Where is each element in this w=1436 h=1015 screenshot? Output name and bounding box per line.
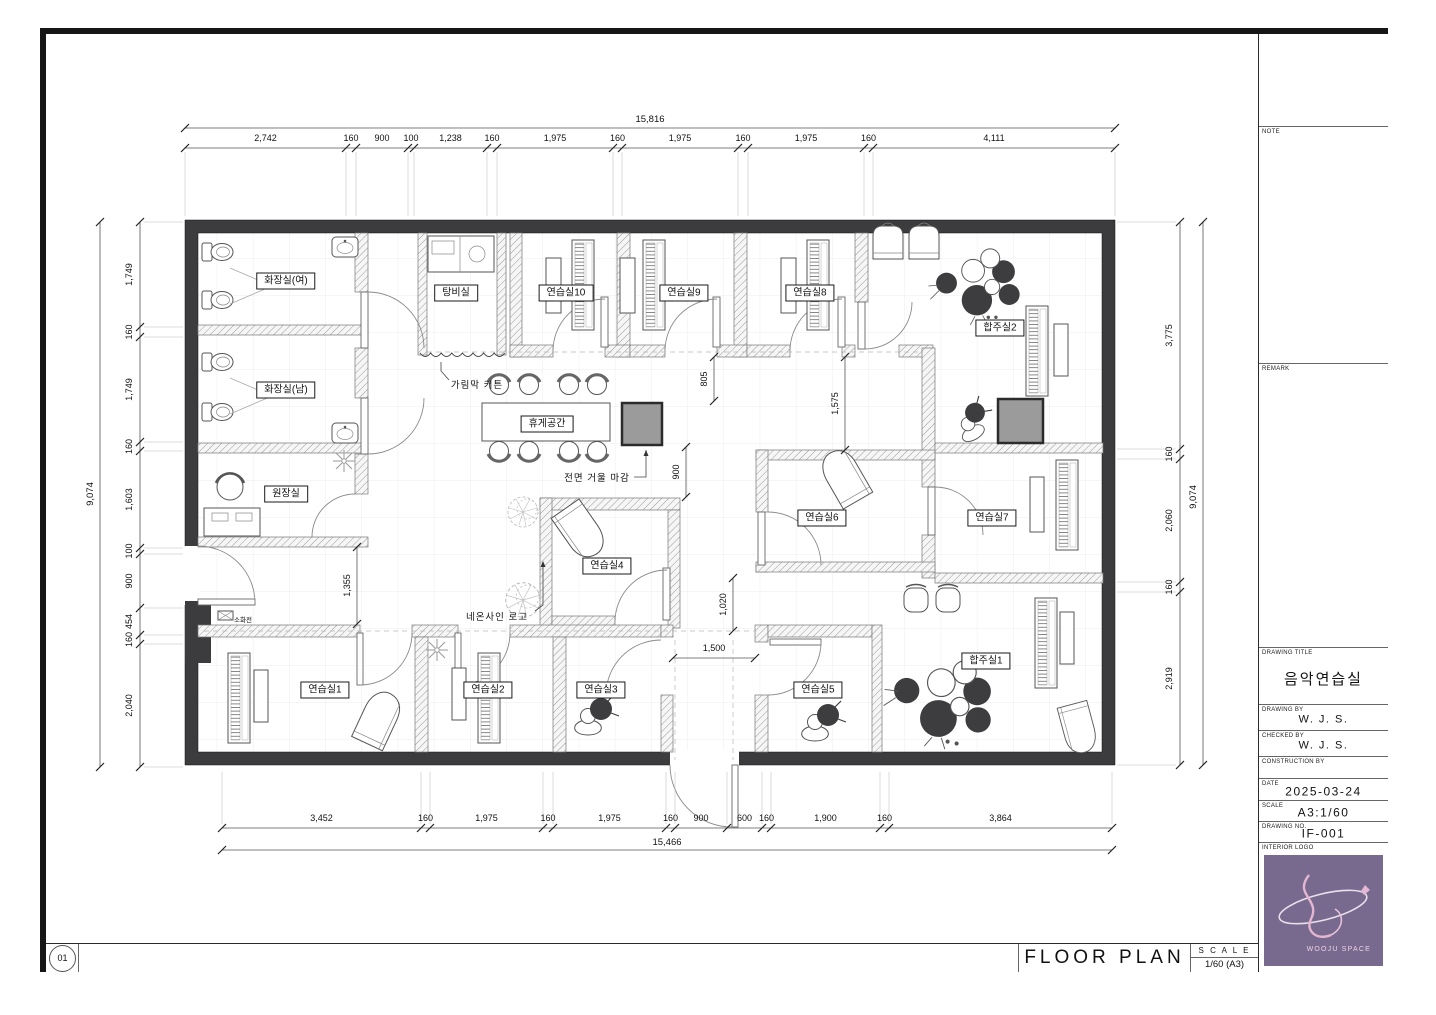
- drawing-title-footer: FLOOR PLAN: [1018, 944, 1190, 972]
- interior-logo-label: INTERIOR LOGO: [1262, 845, 1314, 851]
- checked-by-value: W. J. S.: [1259, 739, 1388, 751]
- dim-label: 1,975: [544, 133, 567, 143]
- dim-label: 900: [671, 464, 681, 479]
- room-label-practice-2: 연습실2: [463, 682, 512, 699]
- room-label-ensemble-1: 합주실1: [961, 653, 1010, 670]
- dim-label: 1,749: [124, 378, 134, 401]
- room-label-practice-10: 연습실10: [539, 285, 594, 302]
- room-label-practice-1: 연습실1: [300, 682, 349, 699]
- dim-label: 3,775: [1164, 324, 1174, 347]
- dim-label: 900: [374, 133, 389, 143]
- room-label-restroom-men: 화장실(남): [256, 382, 315, 399]
- dim-label: 1,238: [439, 133, 462, 143]
- room-label-lounge: 휴게공간: [521, 416, 574, 433]
- checked-by-section: CHECKED BY W. J. S.: [1259, 731, 1388, 757]
- room-label-practice-3: 연습실3: [576, 682, 625, 699]
- annotation-curtain: 가림막 커튼: [451, 377, 503, 391]
- annotation-hydrant: 소화전: [234, 614, 252, 624]
- date-section: DATE 2025-03-24: [1259, 779, 1388, 801]
- sheet-number-cell: 01: [46, 944, 79, 972]
- dim-label: 160: [735, 133, 750, 143]
- room-label-director-office: 원장실: [264, 486, 308, 503]
- construction-by-section: CONSTRUCTION BY: [1259, 757, 1388, 779]
- dim-label: 900: [124, 573, 134, 588]
- construction-by-label: CONSTRUCTION BY: [1262, 759, 1325, 765]
- dim-label: 1,500: [703, 643, 726, 653]
- dim-label: 160: [540, 813, 555, 823]
- dim-label: 2,919: [1164, 667, 1174, 690]
- dim-label: 2,060: [1164, 509, 1174, 532]
- drawing-no-value: IF-001: [1259, 827, 1388, 841]
- dim-label: 160: [124, 632, 134, 647]
- dim-label: 160: [124, 439, 134, 454]
- drawing-by-value: W. J. S.: [1259, 713, 1388, 725]
- dim-label: 100: [403, 133, 418, 143]
- dim-label: 160: [877, 813, 892, 823]
- dim-label: 2,742: [254, 133, 277, 143]
- dim-label: 1,975: [598, 813, 621, 823]
- dim-label: 1,975: [669, 133, 692, 143]
- dim-label: 1,020: [718, 593, 728, 616]
- scale-value: A3:1/60: [1259, 806, 1388, 820]
- dim-label: 805: [699, 371, 709, 386]
- scale-footer-value: 1/60 (A3): [1191, 958, 1258, 972]
- room-label-restroom-women: 화장실(여): [256, 273, 315, 290]
- dim-label: 160: [1164, 446, 1174, 461]
- dim-label: 3,452: [310, 813, 333, 823]
- room-label-practice-4: 연습실4: [582, 558, 631, 575]
- logo-text: WOOJU SPACE: [1307, 946, 1371, 953]
- annotation-mirror: 전면 거울 마감: [564, 470, 630, 484]
- drawing-by-section: DRAWING BY W. J. S.: [1259, 705, 1388, 731]
- dim-label: 4,111: [983, 133, 1004, 143]
- drawing-sheet: 2,7421609001001,2381601,9751601,9751601,…: [0, 0, 1436, 1015]
- sheet-number: 01: [49, 945, 76, 972]
- dim-label: 160: [610, 133, 625, 143]
- note-label: NOTE: [1262, 129, 1280, 135]
- dim-label: 15,816: [635, 114, 664, 125]
- dim-label: 160: [484, 133, 499, 143]
- drawing-title-section: DRAWING TITLE 음악연습실: [1259, 648, 1388, 705]
- dim-label: 1,749: [124, 263, 134, 286]
- annotation-neon: 네온사인 로고: [466, 609, 528, 623]
- drawing-no-section: DRAWING NO. IF-001: [1259, 822, 1388, 843]
- scale-heading: S C A L E: [1191, 944, 1258, 958]
- dim-label: 160: [861, 133, 876, 143]
- dim-label: 1,900: [814, 813, 837, 823]
- dim-label: 9,074: [1188, 485, 1199, 509]
- dim-label: 1,975: [795, 133, 818, 143]
- floor-plan-svg: 2,7421609001001,2381601,9751601,9751601,…: [0, 0, 1436, 1015]
- dim-label: 160: [418, 813, 433, 823]
- drawing-title-value: 음악연습실: [1259, 668, 1388, 689]
- title-block-blank: [1259, 34, 1388, 127]
- dim-label: 100: [124, 543, 134, 558]
- dim-label: 3,864: [989, 813, 1012, 823]
- room-label-pantry: 탕비실: [434, 285, 478, 302]
- title-block: NOTE REMARK DRAWING TITLE 음악연습실 DRAWING …: [1258, 34, 1388, 972]
- dim-label: 2,040: [124, 694, 134, 717]
- room-label-practice-7: 연습실7: [967, 510, 1016, 527]
- note-section: NOTE: [1259, 127, 1388, 364]
- dim-label: 160: [124, 324, 134, 339]
- dim-label: 160: [343, 133, 358, 143]
- room-label-practice-9: 연습실9: [659, 285, 708, 302]
- date-value: 2025-03-24: [1259, 784, 1388, 798]
- dim-label: 160: [663, 813, 678, 823]
- scale-cell: S C A L E 1/60 (A3): [1190, 944, 1258, 972]
- room-label-practice-8: 연습실8: [785, 285, 834, 302]
- dim-label: 15,466: [652, 837, 681, 848]
- remark-section: REMARK: [1259, 364, 1388, 648]
- room-label-ensemble-2: 합주실2: [975, 320, 1024, 337]
- room-label-practice-6: 연습실6: [797, 510, 846, 527]
- dim-label: 160: [1164, 579, 1174, 594]
- dim-label: 1,575: [830, 392, 840, 415]
- dim-label: 900: [693, 813, 708, 823]
- footer-bar: 01 FLOOR PLAN S C A L E 1/60 (A3): [46, 943, 1258, 972]
- dim-label: 9,074: [85, 482, 96, 506]
- remark-label: REMARK: [1262, 366, 1289, 372]
- dim-label: 1,603: [124, 488, 134, 511]
- company-logo: WOOJU SPACE: [1264, 855, 1382, 966]
- dim-label: 1,975: [475, 813, 498, 823]
- room-label-practice-5: 연습실5: [793, 682, 842, 699]
- drawing-title-label: DRAWING TITLE: [1262, 650, 1313, 656]
- scale-section: SCALE A3:1/60: [1259, 801, 1388, 822]
- dim-label: 1,355: [342, 574, 352, 597]
- dim-label: 454: [124, 614, 134, 629]
- interior-logo-section: INTERIOR LOGO WOOJU SPACE: [1259, 843, 1388, 972]
- dim-label: 160: [759, 813, 774, 823]
- dim-label: 600: [737, 813, 752, 823]
